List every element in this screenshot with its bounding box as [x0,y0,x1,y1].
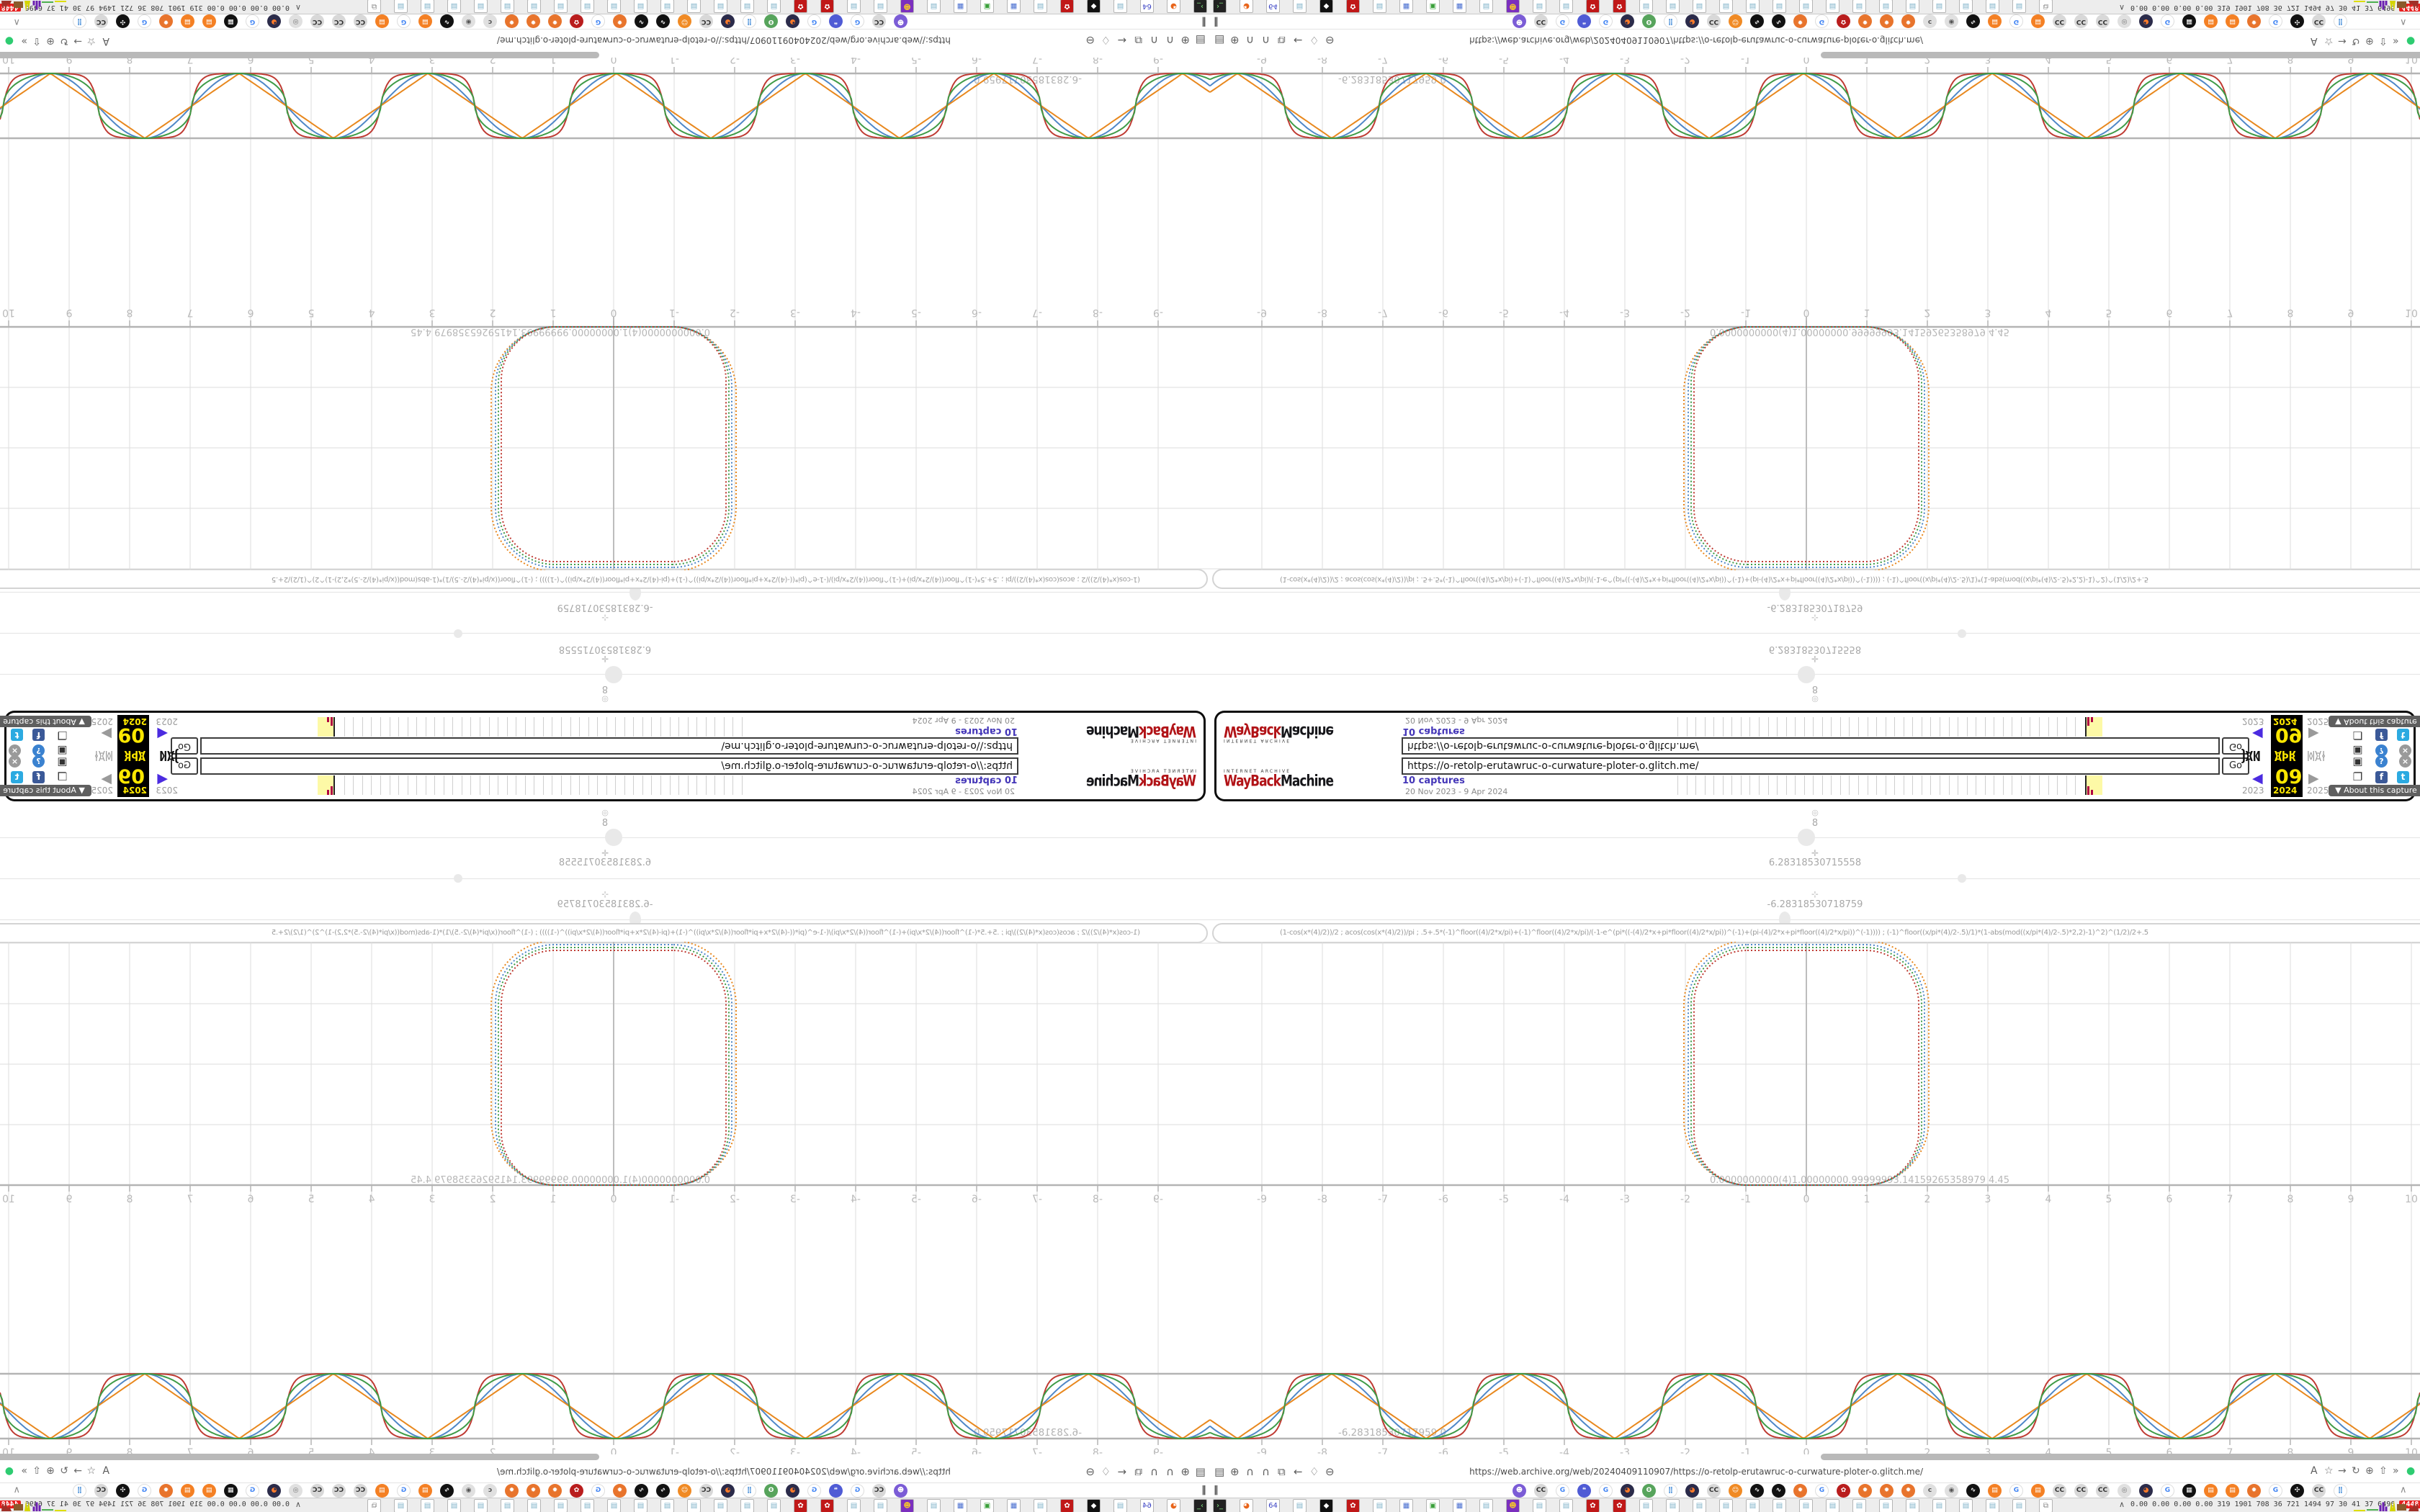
tab-favicon[interactable]: G [2269,1484,2282,1498]
tab-favicon[interactable]: G [138,14,151,28]
taskbar-app-button[interactable]: ▤ [1719,0,1733,13]
tab-favicon[interactable]: ☻ [894,1484,907,1498]
status-dot-icon[interactable]: ● [5,35,14,47]
taskbar-app-button[interactable]: ▦ [954,1499,967,1512]
taskbar-app-button[interactable]: ▤ [1826,0,1839,13]
tab-favicon[interactable]: ☻ [894,14,907,28]
taskbar[interactable]: ›_◕64▤◆✿▤▦▣▦▤☻▤▤✿✿▤▤▤▤▤▤▤▤▤▤▤▤▤▤▤⧉ 0.00 … [1210,0,2420,14]
taskbar-app-button[interactable]: ▤ [527,0,541,13]
tab-favicon[interactable]: ✹ [1793,14,1807,28]
tab-favicon[interactable]: ◉ [462,14,475,28]
taskbar-app-button[interactable]: ▤ [474,0,488,13]
slider-handle-2[interactable] [454,629,462,638]
horizontal-scrollbar[interactable] [1821,1454,2420,1460]
tab-favicon[interactable]: ◕ [721,1484,735,1498]
overflow-icon[interactable]: » [2393,35,2399,47]
copy-icon[interactable]: ⧉ [1278,1465,1286,1478]
taskbar-app-button[interactable]: ▤ [1034,0,1047,13]
translate-icon[interactable]: A [102,1465,109,1477]
taskbar-app-button[interactable]: ▣ [980,1499,994,1512]
tab-favicon[interactable]: c [1923,14,1937,28]
taskbar-app-button[interactable]: ▤ [687,1499,701,1512]
taskbar-app-button[interactable]: ▤ [1533,1499,1546,1512]
tab-favicon[interactable]: G [1599,14,1613,28]
plot-area[interactable]: -9-9-8-8-7-7-6-6-5-5-4-4-3-3-2-2-1-10011… [1210,58,2420,570]
slider-track-2[interactable] [1210,878,2420,879]
prev-month-label[interactable]: JAN [159,756,178,764]
captures-link[interactable]: 10 captures [1402,775,1465,786]
formula-input[interactable]: (1-cos(x*(4)/2))/2 ; acos(cos(x*(4)/2))/… [1212,569,2420,589]
taskbar-app-button[interactable]: ▤ [1113,0,1127,13]
taskbar-app-button[interactable]: ▤ [1746,0,1760,13]
twitter-icon[interactable]: t [2397,729,2409,741]
taskbar[interactable]: ›_◕64▤◆✿▤▦▣▦▤☻▤▤✿✿▤▤▤▤▤▤▤▤▤▤▤▤▤▤▤⧉ 0.00 … [1210,1498,2420,1512]
taskbar-app-button[interactable]: ▤ [554,1499,568,1512]
taskbar-app-button[interactable]: ✿ [794,1499,807,1512]
window-icon[interactable]: ▣ [2352,744,2364,756]
taskbar-app-button[interactable]: ▤ [1852,0,1866,13]
taskbar-app-button[interactable]: ▣ [1426,0,1440,13]
globe-icon[interactable]: ⊕ [1230,34,1240,47]
next-year-label[interactable]: 2025 [2307,786,2329,796]
tab-favicon[interactable]: ◎ [2117,14,2131,28]
tab-favicon[interactable]: ✿ [1837,14,1850,28]
taskbar-app-button[interactable]: ▤ [581,0,594,13]
tab-favicon[interactable]: ✣ [2290,14,2304,28]
tab-favicon[interactable]: CC [1707,1484,1721,1498]
overflow-icon[interactable]: » [2393,1465,2399,1477]
formula-input[interactable]: (1-cos(x*(4)/2))/2 ; acos(cos(x*(4)/2))/… [0,923,1208,943]
forward-icon[interactable]: → [73,35,82,47]
taskbar-app-button[interactable]: ▤ [1959,0,1973,13]
help-icon[interactable]: ? [2375,756,2388,768]
shield-icon[interactable]: ♢ [1101,1465,1111,1478]
taskbar-app-button[interactable]: ◕ [1240,1499,1253,1512]
taskbar-app-button[interactable]: ✿ [794,0,807,13]
tab-favicon[interactable]: ▤ [2031,1484,2045,1498]
lock-icon[interactable]: ⊖ [1325,1465,1335,1478]
window-icon[interactable]: ▣ [56,756,68,768]
taskbar-app-button[interactable]: ✿ [820,1499,834,1512]
copy-icon[interactable]: ⧉ [1278,34,1286,47]
pause-icon[interactable]: ‖ [1214,1485,1219,1495]
next-capture-arrow[interactable]: ▶ [101,770,112,786]
overflow-icon[interactable]: » [21,35,27,47]
tab-favicon[interactable]: ✹ [159,1484,173,1498]
tab-favicon[interactable]: ✣ [2290,1484,2304,1498]
window-icon[interactable]: ▣ [2352,756,2364,768]
tab-favicon[interactable]: ✹ [613,1484,627,1498]
tab-favicon[interactable]: ◉ [1945,14,1958,28]
back-icon[interactable]: ← [1294,1465,1303,1478]
tab-favicon[interactable]: ☻ [1512,1484,1526,1498]
tab-favicon[interactable]: ✿ [570,14,583,28]
headphones2-icon[interactable]: ∩ [1150,1465,1158,1478]
tab-favicon[interactable]: ʘ [764,14,778,28]
globe-icon[interactable]: ⊕ [1180,34,1190,47]
tab-favicon[interactable]: CC [94,1484,108,1498]
plot-area[interactable]: -9-9-8-8-7-7-6-6-5-5-4-4-3-3-2-2-1-10011… [0,58,1210,570]
share-icon[interactable]: ⇧ [32,1465,41,1477]
facebook-icon[interactable]: f [2375,729,2388,741]
formula-input[interactable]: (1-cos(x*(4)/2))/2 ; acos(cos(x*(4)/2))/… [0,569,1208,589]
tab-favicon[interactable]: ✹ [613,14,627,28]
tab-favicon[interactable]: ✹ [1793,1484,1807,1498]
tab-strip[interactable]: ‖ ☻CCG❝G◕ʘ⣿◕CC☺∿∿✹G✿✹✹✹c◉∿▤G▤CCCCCC◎◕G▦▤… [0,14,1210,30]
tab-favicon[interactable]: ☻ [1512,14,1526,28]
prev-month-label[interactable]: JAN [2242,748,2261,756]
taskbar-app-button[interactable]: ▤ [1639,1499,1653,1512]
next-month-label[interactable]: MAY [94,756,113,764]
tab-favicon[interactable]: ✹ [505,1484,519,1498]
pause-icon[interactable]: ‖ [1202,1485,1207,1495]
taskbar-app-button[interactable]: ▤ [1479,1499,1493,1512]
tab-favicon[interactable]: CC [2096,14,2110,28]
tab-overflow-chevron-icon[interactable]: ∧ [2400,1485,2407,1495]
browser-url-bar[interactable]: ▤⊕∩∩⧉←♢⊖ https://web.archive.org/web/202… [0,1463,1210,1482]
taskbar-app-button[interactable]: ▤ [767,1499,781,1512]
tab-favicon[interactable]: ʘ [1642,14,1656,28]
tab-favicon[interactable]: ⣿ [73,1484,86,1498]
taskbar-app-button[interactable]: ▣ [1426,1499,1440,1512]
screenshot-icon[interactable]: ❐ [2352,771,2364,783]
prev-year-label[interactable]: 2023 [156,716,178,726]
tab-favicon[interactable]: ✹ [1880,14,1894,28]
taskbar-app-button[interactable]: ▤ [1879,1499,1893,1512]
taskbar-app-button[interactable]: ▤ [1533,0,1546,13]
help-icon[interactable]: ? [32,744,45,756]
tab-strip[interactable]: ‖ ☻CCG❝G◕ʘ⣿◕CC☺∿∿✹G✿✹✹✹c◉∿▤G▤CCCCCC◎◕G▦▤… [1210,1482,2420,1498]
wayback-logo[interactable]: INTERNET ARCHIVE WayBackMachine [1130,724,1196,743]
headphones-icon[interactable]: ∩ [1166,34,1174,47]
taskbar-app-button[interactable]: ▤ [1479,0,1493,13]
browser-url-bar[interactable]: ▤⊕∩∩⧉←♢⊖ https://web.archive.org/web/202… [1210,1463,2420,1482]
copy-icon[interactable]: ⧉ [1134,34,1142,47]
taskbar-app-button[interactable]: ▤ [607,0,621,13]
about-this-capture-button[interactable]: ▼ About this capture [0,716,91,727]
next-capture-arrow[interactable]: ▶ [101,726,112,742]
next-year-label[interactable]: 2025 [91,716,113,726]
next-month-label[interactable]: MAY [2307,756,2326,764]
tab-favicon[interactable]: CC [699,1484,713,1498]
tab-favicon[interactable]: ◎ [289,1484,302,1498]
back-icon[interactable]: ← [1117,34,1126,47]
globe-icon[interactable]: ⊕ [1230,1465,1240,1478]
slider-track-3[interactable] [1210,592,2420,593]
tab-favicon[interactable]: ⣿ [2334,14,2347,28]
tab-favicon[interactable]: ▤ [2031,14,2045,28]
slider-handle-2[interactable] [454,874,462,883]
tab-strip[interactable]: ‖ ☻CCG❝G◕ʘ⣿◕CC☺∿∿✹G✿✹✹✹c◉∿▤G▤CCCCCC◎◕G▦▤… [0,1482,1210,1498]
taskbar-app-button[interactable]: ▤ [447,0,461,13]
taskbar-app-button[interactable]: ▤ [1034,1499,1047,1512]
prev-year-label[interactable]: 2023 [2242,786,2264,796]
site-globe-icon[interactable]: ⊕ [46,1465,55,1477]
tab-favicon[interactable]: G [2009,14,2023,28]
tab-favicon[interactable]: G [2161,1484,2174,1498]
taskbar-app-button[interactable]: ▦ [954,0,967,13]
next-month-label[interactable]: MAY [94,748,113,756]
pause-icon[interactable]: ‖ [1202,17,1207,27]
trash-icon[interactable]: ▤ [1196,1465,1206,1478]
headphones2-icon[interactable]: ∩ [1262,1465,1270,1478]
trash-icon[interactable]: ▤ [1214,34,1224,47]
reload-icon[interactable]: ↻ [2352,35,2360,47]
browser-url-bar[interactable]: ▤⊕∩∩⧉←♢⊖ https://web.archive.org/web/202… [1210,30,2420,49]
taskbar-app-button[interactable]: ▤ [1773,0,1786,13]
tab-favicon[interactable]: ✣ [116,1484,130,1498]
slider-track-2[interactable] [0,633,1210,634]
taskbar-app-button[interactable]: ◆ [1319,1499,1333,1512]
site-globe-icon[interactable]: ⊕ [2365,35,2374,47]
taskbar-app-button[interactable]: ▤ [421,1499,434,1512]
taskbar-app-button[interactable]: ▤ [874,1499,887,1512]
taskbar-app-button[interactable]: ▦ [1007,0,1021,13]
bookmark-star-icon[interactable]: ☆ [2324,35,2334,47]
facebook-icon[interactable]: f [32,771,45,783]
tab-favicon[interactable]: ▦ [2182,1484,2196,1498]
tab-favicon[interactable]: ❝ [829,1484,843,1498]
taskbar-app-button[interactable]: ▤ [554,0,568,13]
wayback-url-input[interactable]: https://o-retolp-erutawruc-o-curwature-p… [200,737,1018,755]
tab-favicon[interactable]: G [851,14,864,28]
tab-favicon[interactable]: ◕ [786,1484,799,1498]
capture-sparkline[interactable] [335,717,743,737]
tab-favicon[interactable]: ∿ [1966,14,1980,28]
back-icon[interactable]: ← [1117,1465,1126,1478]
taskbar-app-button[interactable]: ▤ [847,0,861,13]
tab-favicon[interactable]: ◕ [267,1484,281,1498]
tab-favicon[interactable]: ❝ [829,14,843,28]
taskbar-app-button[interactable]: ▤ [767,0,781,13]
tab-favicon[interactable]: ▤ [375,14,389,28]
taskbar-app-button[interactable]: ▤ [1879,0,1893,13]
tab-favicon[interactable]: ✿ [570,1484,583,1498]
tab-favicon[interactable]: G [1815,14,1829,28]
tab-favicon[interactable]: ◕ [1685,1484,1699,1498]
help-icon[interactable]: ? [32,756,45,768]
taskbar-app-button[interactable]: ▤ [474,1499,488,1512]
taskbar-app-button[interactable]: ▤ [660,0,674,13]
screenshot-icon[interactable]: ❐ [56,729,68,741]
taskbar-app-button[interactable]: ▤ [581,1499,594,1512]
tab-favicon[interactable]: CC [2096,1484,2110,1498]
tab-favicon[interactable]: ✹ [1901,1484,1915,1498]
tab-favicon[interactable]: ▤ [181,14,194,28]
globe-icon[interactable]: ⊕ [1180,1465,1190,1478]
tab-overflow-chevron-icon[interactable]: ∧ [2400,17,2407,27]
about-this-capture-button[interactable]: ▼ About this capture [0,785,91,796]
tab-favicon[interactable]: ⣿ [743,14,756,28]
facebook-icon[interactable]: f [2375,771,2388,783]
prev-capture-arrow[interactable]: ◀ [2252,726,2263,742]
next-year-label[interactable]: 2025 [2307,716,2329,726]
taskbar-app-button[interactable]: ◆ [1087,0,1101,13]
taskbar-app-button[interactable]: ▤ [714,0,727,13]
tab-favicon[interactable]: ✿ [1837,1484,1850,1498]
taskbar-app-button[interactable]: ▤ [501,1499,514,1512]
tab-favicon[interactable]: CC [354,14,367,28]
forward-icon[interactable]: → [2338,35,2347,47]
taskbar-app-button[interactable]: ▤ [1986,0,1999,13]
reload-icon[interactable]: ↻ [60,35,68,47]
tab-favicon[interactable]: ▤ [2204,14,2218,28]
tab-favicon[interactable]: ▦ [224,14,238,28]
tab-favicon[interactable]: CC [2053,1484,2066,1498]
capture-sparkline[interactable] [335,775,743,795]
tab-favicon[interactable]: CC [94,14,108,28]
horizontal-scrollbar[interactable] [0,52,599,58]
tab-favicon[interactable]: ʘ [764,1484,778,1498]
share-icon[interactable]: ⇧ [2379,35,2388,47]
tab-favicon[interactable]: ∿ [656,14,670,28]
slider-handle-2[interactable] [1958,629,1966,638]
taskbar-app-button[interactable]: ▤ [1293,0,1307,13]
tab-favicon[interactable]: CC [354,1484,367,1498]
tab-favicon[interactable]: ✣ [116,14,130,28]
about-this-capture-button[interactable]: ▼ About this capture [2329,785,2420,796]
tab-favicon[interactable]: ∿ [1750,1484,1764,1498]
bookmark-star-icon[interactable]: ☆ [2324,1465,2334,1477]
taskbar-app-button[interactable]: ›_ [1193,1499,1207,1512]
tab-favicon[interactable]: ☺ [678,14,691,28]
taskbar-app-button[interactable]: ✿ [1613,0,1626,13]
taskbar-app-button[interactable]: ▤ [2012,0,2026,13]
tab-favicon[interactable]: G [591,14,605,28]
tab-favicon[interactable]: ◕ [2139,1484,2153,1498]
close-icon[interactable]: × [9,744,21,756]
tab-favicon[interactable]: G [397,14,411,28]
status-dot-icon[interactable]: ● [2406,35,2415,47]
tab-favicon[interactable]: CC [872,1484,886,1498]
taskbar-app-button[interactable]: ›_ [1193,0,1207,13]
taskbar-app-button[interactable]: ✿ [1586,1499,1600,1512]
prev-year-label[interactable]: 2023 [156,786,178,796]
taskbar-app-button[interactable]: ✿ [1586,0,1600,13]
tab-favicon[interactable]: G [1556,14,1569,28]
tab-favicon[interactable]: CC [1534,1484,1548,1498]
tab-favicon[interactable]: ⣿ [1664,14,1677,28]
tab-favicon[interactable]: ◕ [1621,14,1634,28]
tab-favicon[interactable]: ❝ [1577,14,1591,28]
taskbar-app-button[interactable]: ▤ [1746,1499,1760,1512]
taskbar-app-button[interactable]: ▦ [1007,1499,1021,1512]
tab-favicon[interactable]: ✹ [526,1484,540,1498]
close-icon[interactable]: × [2399,756,2411,768]
tab-favicon[interactable]: ◎ [2117,1484,2131,1498]
taskbar-app-button[interactable]: 64 [1140,1499,1154,1512]
taskbar-app-button[interactable]: ▦ [1453,0,1466,13]
tab-favicon[interactable]: c [483,14,497,28]
taskbar-app-button[interactable]: ✿ [1346,1499,1360,1512]
tab-favicon[interactable]: ∿ [440,14,454,28]
taskbar-app-button[interactable]: ▤ [1666,1499,1680,1512]
taskbar-app-button[interactable]: ✿ [1613,1499,1626,1512]
tab-favicon[interactable]: ▤ [2226,1484,2239,1498]
slider-handle-1[interactable] [1798,829,1815,846]
horizontal-scrollbar[interactable] [1821,52,2420,58]
pause-icon[interactable]: ‖ [1214,17,1219,27]
taskbar-app-button[interactable]: ▤ [1799,1499,1813,1512]
taskbar[interactable]: ›_◕64▤◆✿▤▦▣▦▤☻▤▤✿✿▤▤▤▤▤▤▤▤▤▤▤▤▤▤▤⧉ 0.00 … [0,0,1210,14]
tab-favicon[interactable]: CC [699,14,713,28]
trash-icon[interactable]: ▤ [1214,1465,1224,1478]
site-globe-icon[interactable]: ⊕ [46,35,55,47]
taskbar-app-button[interactable]: ▤ [847,1499,861,1512]
taskbar-app-button[interactable]: ▤ [1826,1499,1839,1512]
site-globe-icon[interactable]: ⊕ [2365,1465,2374,1477]
taskbar-app-button[interactable]: ▤ [607,1499,621,1512]
tab-favicon[interactable]: ▤ [375,1484,389,1498]
taskbar-app-button[interactable]: ▦ [1399,0,1413,13]
tab-favicon[interactable]: ʘ [1642,1484,1656,1498]
prev-month-label[interactable]: JAN [2242,756,2261,764]
tab-favicon[interactable]: ◕ [1685,14,1699,28]
tab-favicon[interactable]: ▤ [1988,14,2002,28]
tab-favicon[interactable]: ▤ [2204,1484,2218,1498]
tab-favicon[interactable]: G [2269,14,2282,28]
tab-favicon[interactable]: CC [2312,1484,2326,1498]
tab-favicon[interactable]: CC [1534,14,1548,28]
tab-favicon[interactable]: ✹ [2247,1484,2261,1498]
tab-favicon[interactable]: ◎ [289,14,302,28]
taskbar-app-button[interactable]: ▤ [1986,1499,1999,1512]
tab-favicon[interactable]: ◕ [2139,14,2153,28]
browser-url-bar[interactable]: ▤⊕∩∩⧉←♢⊖ https://web.archive.org/web/202… [0,30,1210,49]
wayback-url-input[interactable]: https://o-retolp-erutawruc-o-curwature-p… [1402,737,2220,755]
taskbar-app-button[interactable]: ▤ [927,1499,941,1512]
tab-favicon[interactable]: ✹ [1880,1484,1894,1498]
taskbar-app-button[interactable]: ▤ [1906,0,1919,13]
taskbar-app-button[interactable]: ▤ [1373,1499,1386,1512]
translate-icon[interactable]: A [2311,35,2318,47]
slider-track-3[interactable] [0,919,1210,920]
knob-icon[interactable]: ◎ [1210,808,2420,817]
taskbar-app-button[interactable]: ☻ [900,1499,914,1512]
taskbar-app-button[interactable]: ▤ [1959,1499,1973,1512]
tab-favicon[interactable]: ✹ [1858,1484,1872,1498]
tab-favicon[interactable]: ∿ [1750,14,1764,28]
taskbar-app-button[interactable]: ▤ [394,1499,408,1512]
taskbar-app-button[interactable]: ▤ [660,1499,674,1512]
taskbar-app-button[interactable]: ▤ [1799,0,1813,13]
knob-icon[interactable]: ◎ [0,808,1210,817]
formula-input[interactable]: (1-cos(x*(4)/2))/2 ; acos(cos(x*(4)/2))/… [1212,923,2420,943]
taskbar-app-button[interactable]: ▤ [1373,0,1386,13]
tab-favicon[interactable]: ▤ [2226,14,2239,28]
tab-favicon[interactable]: ◉ [462,1484,475,1498]
taskbar-app-button[interactable]: ▤ [447,1499,461,1512]
taskbar-app-button[interactable]: ▤ [714,1499,727,1512]
taskbar-app-button[interactable]: ▤ [634,0,647,13]
tab-favicon[interactable]: G [2009,1484,2023,1498]
tab-favicon[interactable]: ✹ [548,14,562,28]
taskbar-app-button[interactable]: ▤ [1293,1499,1307,1512]
tab-overflow-chevron-icon[interactable]: ∧ [13,1485,20,1495]
captures-link[interactable]: 10 captures [955,726,1018,737]
tab-favicon[interactable]: ✹ [505,14,519,28]
tab-favicon[interactable]: ◉ [1945,1484,1958,1498]
slider-handle-1[interactable] [605,829,622,846]
taskbar[interactable]: ›_◕64▤◆✿▤▦▣▦▤☻▤▤✿✿▤▤▤▤▤▤▤▤▤▤▤▤▤▤▤⧉ 0.00 … [0,1498,1210,1512]
taskbar-app-button[interactable]: ◆ [1319,0,1333,13]
taskbar-app-button[interactable]: ✿ [1346,0,1360,13]
status-dot-icon[interactable]: ● [2406,1465,2415,1477]
taskbar-app-button[interactable]: ▤ [1773,1499,1786,1512]
headphones-icon[interactable]: ∩ [1246,34,1254,47]
tab-favicon[interactable]: ▦ [2182,14,2196,28]
tab-favicon[interactable]: ⣿ [743,1484,756,1498]
